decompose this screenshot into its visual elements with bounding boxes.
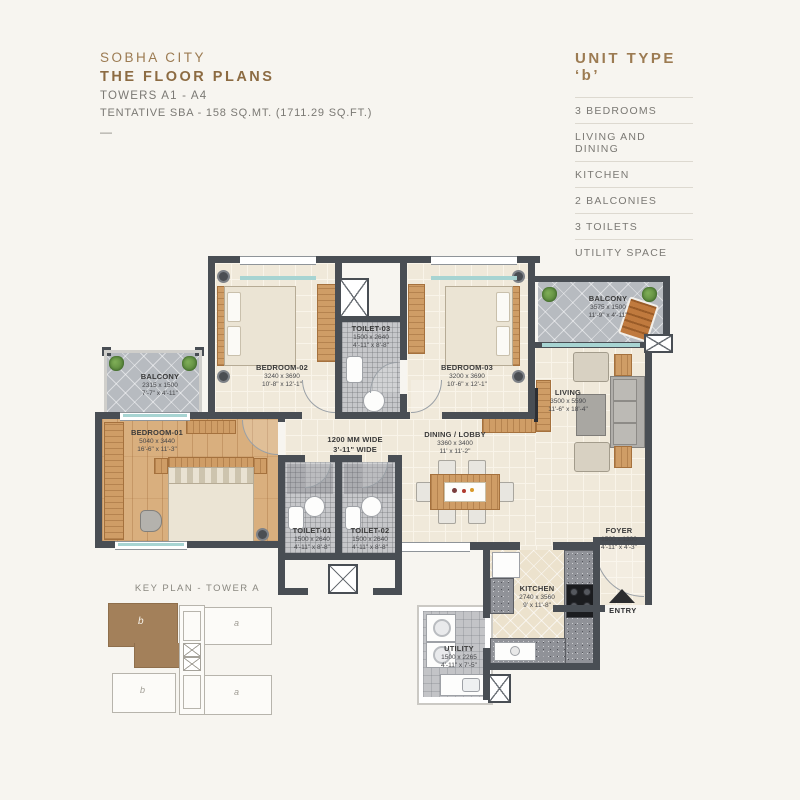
window-glass: [240, 276, 316, 280]
bedroom-02-wardrobe: [317, 284, 337, 362]
side-table: [614, 446, 632, 468]
wall-segment: [388, 455, 402, 462]
unit-feature-bedrooms: 3 BEDROOMS: [575, 97, 693, 123]
wall-segment: [278, 412, 285, 422]
balcony-right-label: BALCONY 3575 x 1500 11'-9" x 4'-11": [566, 294, 650, 321]
sofa-cushion: [613, 423, 637, 445]
stove-burner: [583, 588, 591, 596]
wall-segment: [645, 545, 652, 605]
pillow: [496, 326, 510, 356]
balcony-slider-glass: [542, 343, 640, 347]
shaft-duct: [644, 334, 673, 353]
table-decor: [452, 488, 457, 493]
key-plan-lift: [183, 643, 201, 657]
washer-drum: [433, 619, 451, 637]
bedroom-03-wardrobe: [408, 284, 425, 354]
dining-chair: [498, 482, 514, 502]
bedside-lamp: [217, 370, 230, 383]
washbasin: [304, 496, 325, 517]
wall-segment: [330, 455, 362, 462]
wall-segment: [483, 542, 490, 618]
unit-panel: UNIT TYPE ‘b’ 3 BEDROOMS LIVING AND DINI…: [575, 50, 693, 265]
pillow: [496, 292, 510, 322]
project-name: SOBHA CITY: [100, 50, 440, 65]
wall-segment: [278, 455, 285, 595]
bedside-lamp: [217, 270, 230, 283]
shaft-duct: [488, 674, 511, 703]
key-plan-unit-letter: b: [138, 616, 144, 627]
armchair: [573, 352, 609, 382]
table-decor: [462, 489, 466, 493]
entry-arrow-icon: [609, 589, 635, 603]
towers-subtitle: TOWERS A1 - A4: [100, 90, 440, 102]
toilet-01-label: TOILET-01 1500 x 2640 4'-11" x 8'-8": [286, 526, 338, 553]
bedside-lamp: [512, 370, 525, 383]
key-plan: KEY PLAN - TOWER A b a b a: [100, 583, 295, 728]
utility-label: UTILITY 1500 x 2265 4'-11" x 7'-5": [430, 644, 488, 671]
living-label: LIVING 3500 x 5590 11'-6" x 18'-4": [530, 388, 606, 415]
bedroom-01-bed: [168, 483, 254, 542]
shaft-duct: [328, 564, 358, 594]
wall-segment: [400, 262, 407, 360]
wall-segment: [535, 276, 669, 282]
nightstand: [154, 458, 168, 474]
wall-segment: [278, 553, 402, 560]
bedroom-03-label: BEDROOM-03 3200 x 3690 10'-6" x 12'-1": [422, 363, 512, 390]
wall-segment: [335, 412, 410, 419]
side-table: [614, 354, 632, 376]
unit-feature-toilets: 3 TOILETS: [575, 213, 693, 239]
window: [240, 256, 316, 265]
sink-drain: [510, 646, 520, 656]
unit-feature-balconies: 2 BALCONIES: [575, 187, 693, 213]
entry-label: ENTRY: [595, 606, 651, 615]
key-plan-lift: [183, 657, 201, 671]
parapet: [106, 350, 200, 353]
key-plan-unit-b-highlight: [134, 643, 180, 668]
wall-segment: [190, 412, 302, 419]
key-plan-unit-letter: b: [140, 685, 145, 695]
pillow: [227, 292, 241, 322]
bedroom-01-label: BEDROOM-01 5040 x 3440 16'-6" x 11'-3": [115, 428, 199, 455]
foyer-label: FOYER 1500 x 1300 4'-11" x 4'-3": [590, 526, 648, 553]
wall-segment: [553, 542, 593, 550]
key-plan-stair: [183, 675, 201, 709]
wall-segment: [400, 394, 407, 419]
key-plan-title: KEY PLAN - TOWER A: [100, 583, 295, 594]
sofa-cushion: [613, 379, 637, 401]
bedroom-02-label: BEDROOM-02 3240 x 3690 10'-8" x 12'-1": [237, 363, 327, 390]
nightstand: [253, 458, 267, 474]
armchair: [574, 442, 610, 472]
bedside-lamp: [256, 528, 269, 541]
unit-type-title: UNIT TYPE ‘b’: [575, 50, 693, 84]
refrigerator: [492, 552, 520, 578]
sofa-cushion: [613, 401, 637, 423]
wall-segment: [645, 342, 652, 545]
key-plan-stair: [183, 611, 201, 641]
stove-burner: [570, 588, 578, 596]
wall-segment: [95, 412, 102, 548]
toilet-03-label: TOILET-03 1500 x 2640 4'-11" x 8'-8": [342, 324, 400, 351]
wall-segment: [208, 256, 215, 419]
utility-basin: [462, 678, 480, 692]
window: [402, 542, 470, 552]
toilet-02-label: TOILET-02 1500 x 2640 4'-11" x 8'-8": [343, 526, 397, 553]
unit-feature-living-dining: LIVING AND DINING: [575, 123, 693, 161]
key-plan-unit-letter: a: [234, 618, 239, 628]
wall-segment: [442, 412, 535, 419]
header: SOBHA CITY THE FLOOR PLANS TOWERS A1 - A…: [100, 50, 440, 139]
kitchen-label: KITCHEN 2740 x 3560 9' x 11'-8": [509, 584, 565, 611]
page-title: THE FLOOR PLANS: [100, 69, 440, 85]
wall-segment: [470, 542, 520, 550]
parapet: [104, 350, 107, 412]
key-plan-unit-letter: a: [234, 687, 239, 697]
window-glass: [118, 543, 184, 546]
dining-chair: [438, 508, 456, 524]
washbasin: [363, 390, 385, 412]
window: [431, 256, 517, 265]
washbasin: [361, 496, 382, 517]
window-glass: [431, 276, 517, 280]
pillow: [227, 326, 241, 356]
balcony-left-label: BALCONY 2315 x 1500 7'-7" x 4'-11": [118, 372, 202, 399]
wall-segment: [488, 663, 600, 670]
dining-lobby-label: DINING / LOBBY 3360 x 3400 11' x 11'-2": [408, 430, 502, 457]
passage-width-label: 1200 MM WIDE 3'-11" WIDE: [310, 435, 400, 455]
shaft-duct: [339, 278, 369, 318]
table-decor: [470, 488, 474, 492]
wc: [346, 356, 363, 383]
window-glass: [123, 414, 187, 417]
sba-subtitle: TENTATIVE SBA - 158 SQ.MT. (1711.29 SQ.F…: [100, 107, 440, 119]
unit-feature-kitchen: KITCHEN: [575, 161, 693, 187]
dining-chair: [468, 508, 486, 524]
chair: [140, 510, 162, 532]
header-dash: —: [100, 125, 440, 139]
